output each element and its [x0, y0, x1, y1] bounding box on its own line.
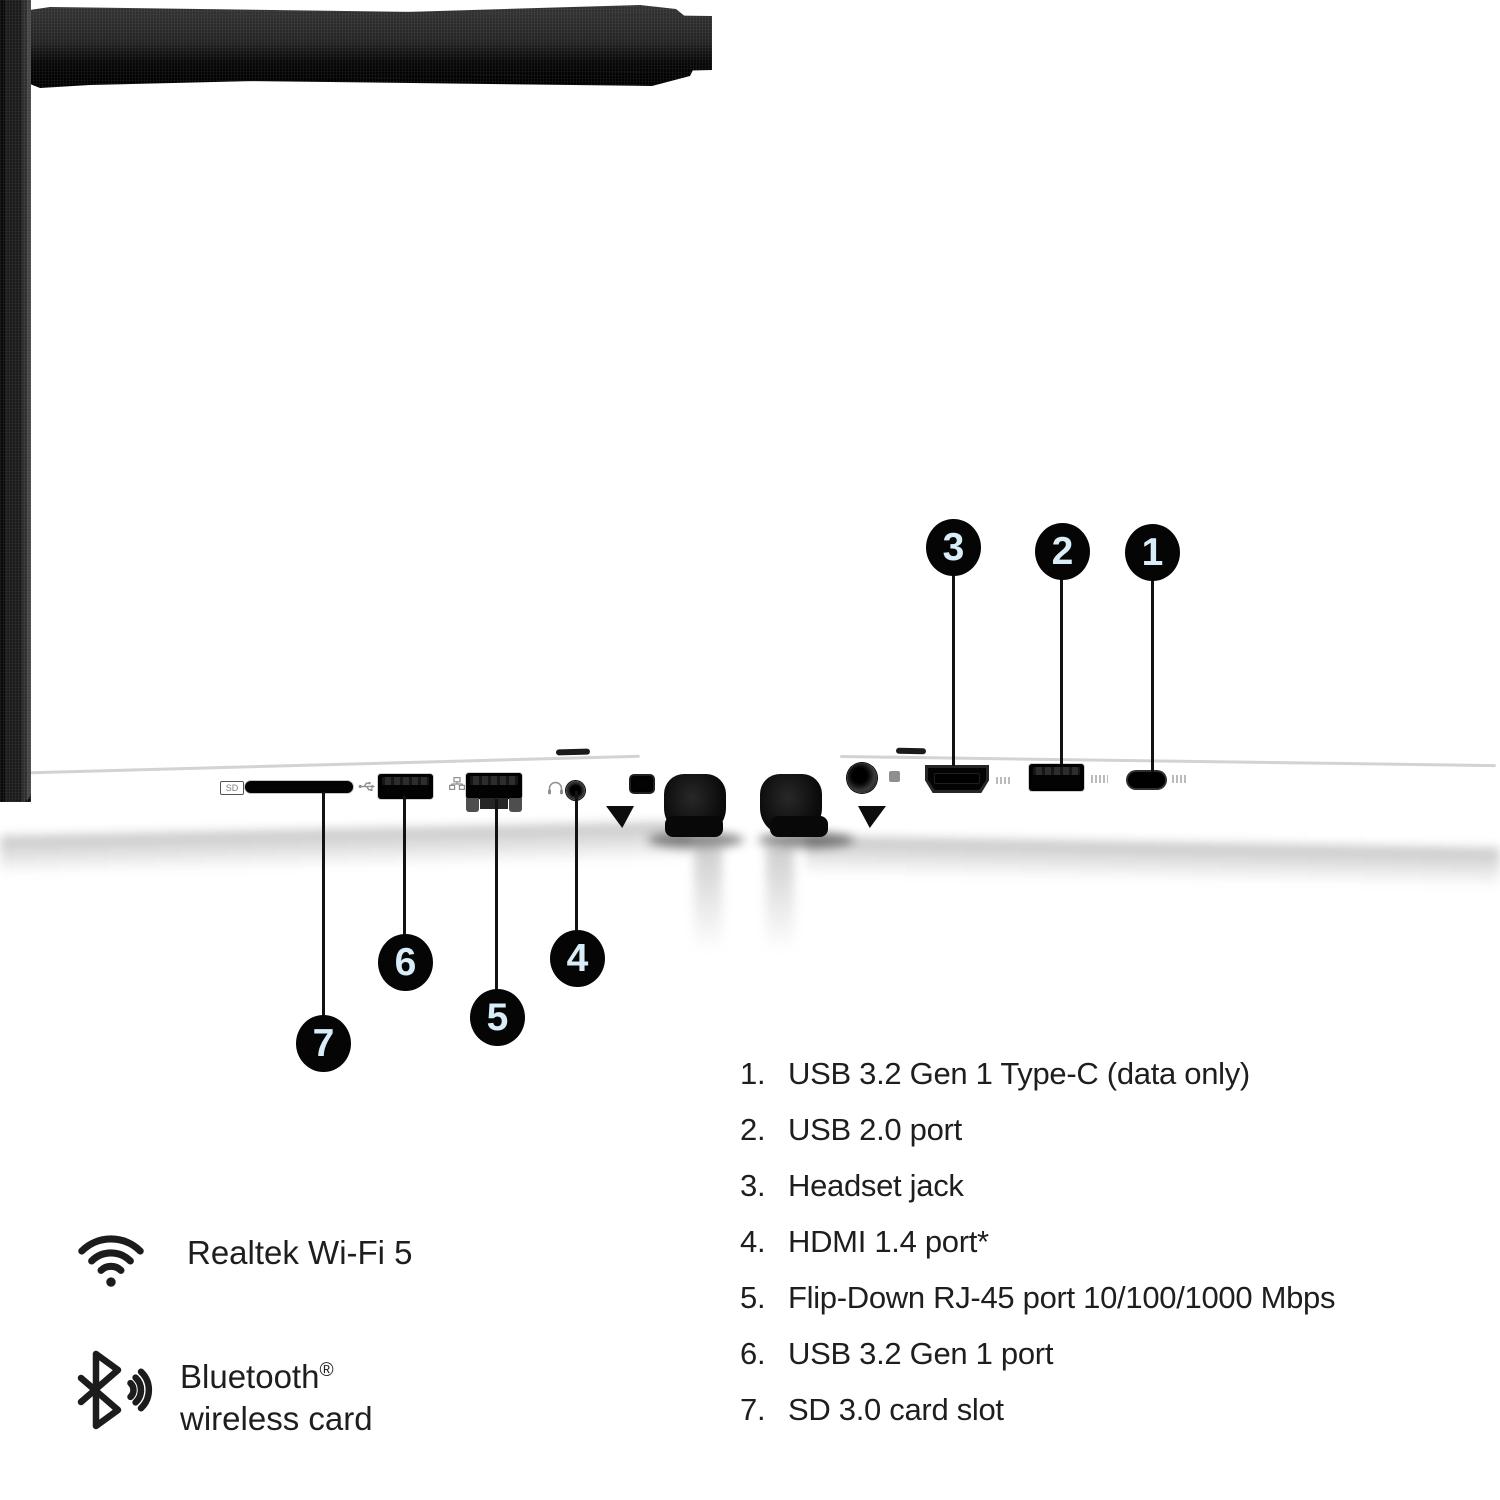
legend-label: HDMI 1.4 port* [788, 1224, 989, 1260]
legend-row: 5. Flip-Down RJ-45 port 10/100/1000 Mbps [740, 1270, 1335, 1326]
callout-line-5 [495, 799, 498, 995]
callout-line-4 [575, 791, 578, 936]
reflection-right-base [805, 836, 1500, 900]
wifi-label: Realtek Wi-Fi 5 [187, 1232, 413, 1274]
legend-label: USB 2.0 port [788, 1112, 962, 1148]
registered-mark: ® [319, 1360, 333, 1381]
usb-a-port-right [1029, 764, 1084, 791]
port-legend: 1. USB 3.2 Gen 1 Type-C (data only) 2. U… [740, 1046, 1335, 1438]
legend-number: 7. [740, 1392, 788, 1428]
bluetooth-icon [68, 1349, 160, 1431]
callout-badge-1: 1 [1125, 524, 1180, 581]
product-image-stage: SD [0, 0, 1500, 1500]
usb-icon [358, 780, 376, 793]
legend-row: 6. USB 3.2 Gen 1 port [740, 1326, 1335, 1382]
callout-line-2 [1060, 560, 1063, 764]
rj45-flip-down-flap-right [509, 798, 522, 812]
laptop-right-screen-edge [0, 0, 31, 802]
callout-line-6 [403, 796, 406, 939]
security-lock-slot [631, 776, 653, 792]
laptop-left-seam-bump [556, 749, 590, 756]
callout-badge-3: 3 [926, 519, 981, 576]
legend-label: SD 3.0 card slot [788, 1392, 1004, 1428]
sd-card-label: SD [220, 781, 244, 795]
callout-badge-6: 6 [378, 934, 433, 991]
rj45-flip-down-flap-left [466, 798, 479, 812]
legend-number: 1. [740, 1056, 788, 1092]
callout-badge-2: 2 [1035, 523, 1090, 580]
rj45-flip-down-flap-mid [480, 798, 508, 809]
hdmi-port [925, 765, 989, 793]
bluetooth-name: Bluetooth [180, 1358, 319, 1395]
usb-c-label-mark [1172, 775, 1186, 783]
ethernet-icon [449, 777, 465, 790]
callout-badge-7: 7 [296, 1015, 351, 1072]
usb-label-mark [1091, 775, 1108, 783]
rj45-port [466, 773, 522, 799]
reflection-left-screen [694, 846, 722, 951]
usb-c-port [1128, 772, 1165, 788]
legend-row: 1. USB 3.2 Gen 1 Type-C (data only) [740, 1046, 1335, 1102]
legend-row: 2. USB 2.0 port [740, 1102, 1335, 1158]
reflection-right-screen [766, 846, 794, 951]
legend-row: 4. HDMI 1.4 port* [740, 1214, 1335, 1270]
legend-number: 3. [740, 1168, 788, 1204]
legend-row: 7. SD 3.0 card slot [740, 1382, 1335, 1438]
headset-icon [547, 781, 564, 796]
legend-number: 4. [740, 1224, 788, 1260]
legend-label: USB 3.2 Gen 1 port [788, 1336, 1053, 1372]
callout-line-3 [952, 556, 955, 766]
callout-line-1 [1151, 560, 1154, 772]
hdmi-label-mark [996, 777, 1010, 784]
legend-number: 6. [740, 1336, 788, 1372]
legend-label: Headset jack [788, 1168, 964, 1204]
callout-badge-5: 5 [470, 989, 525, 1046]
laptop-left-hinge-foot [665, 816, 723, 837]
legend-row: 3. Headset jack [740, 1158, 1335, 1214]
laptop-right-hinge-foot [770, 816, 828, 837]
laptop-right-front-foot [858, 806, 886, 828]
reflection-left-base [0, 822, 691, 888]
laptop-right-seam-bump [896, 748, 926, 755]
legend-label: Flip-Down RJ-45 port 10/100/1000 Mbps [788, 1280, 1335, 1316]
sd-card-slot [245, 781, 353, 793]
power-status-led [889, 771, 900, 782]
legend-label: USB 3.2 Gen 1 Type-C (data only) [788, 1056, 1250, 1092]
dc-power-jack [847, 763, 877, 793]
callout-badge-4: 4 [550, 930, 605, 987]
bluetooth-label-line2: wireless card [180, 1398, 373, 1440]
wifi-icon [64, 1213, 158, 1291]
bluetooth-label: Bluetooth® wireless card [180, 1350, 373, 1440]
laptop-left-top-edge [2, 755, 640, 775]
callout-line-7 [322, 792, 325, 1021]
legend-number: 2. [740, 1112, 788, 1148]
legend-number: 5. [740, 1280, 788, 1316]
